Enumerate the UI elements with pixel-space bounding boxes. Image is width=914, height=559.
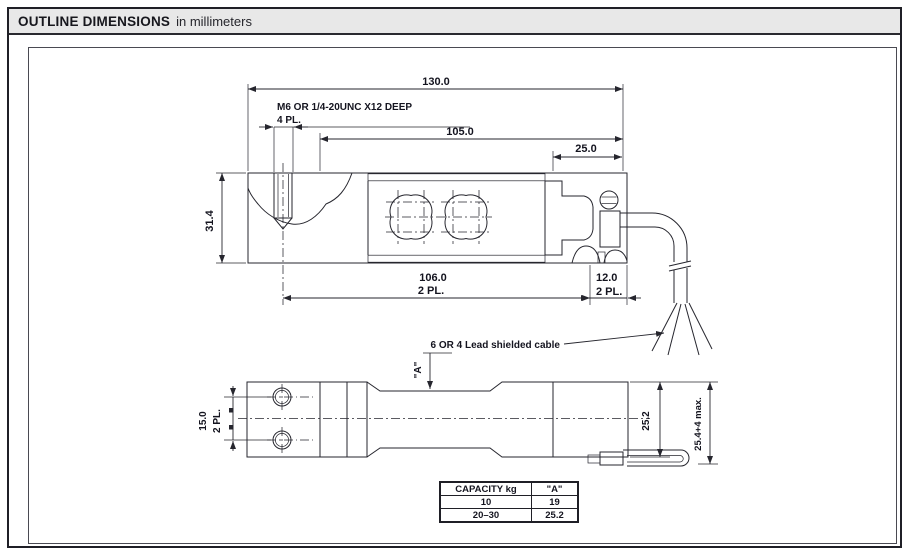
dim-cable-inset-label: 12.0 xyxy=(596,272,617,284)
top-view-dimensions: 130.0 M6 OR 1/4-20UNC X12 DEEP 4 PL. 105… xyxy=(204,76,664,351)
capacity-value: 10 xyxy=(440,496,532,509)
dim-hole-span-places-label: 2 PL. xyxy=(418,285,444,297)
crosshatch-plug xyxy=(545,181,593,255)
dim-cable-inset-places-label: 2 PL. xyxy=(596,286,622,298)
side-view xyxy=(238,382,689,466)
dim-hole-pitch-label: 15.0 xyxy=(198,411,209,431)
capacity-table: CAPACITY kg "A" 10 19 20–30 25.2 xyxy=(439,481,579,523)
knurl-strip-top xyxy=(368,174,545,181)
screw-head-icon xyxy=(600,191,618,209)
hatch-hump-left xyxy=(572,246,600,263)
datasheet-page: OUTLINE DIMENSIONS in millimeters xyxy=(0,0,914,559)
a-value: 25.2 xyxy=(532,509,579,523)
threaded-hole xyxy=(274,163,292,305)
dim-hole-pitch-places-label: 2 PL. xyxy=(212,409,223,433)
dim-mount-length-label: 105.0 xyxy=(446,126,474,138)
thread-note-line1: M6 OR 1/4-20UNC X12 DEEP xyxy=(277,102,412,113)
cable-note-label: 6 OR 4 Lead shielded cable xyxy=(431,340,561,351)
a-value: 19 xyxy=(532,496,579,509)
dim-overall-height-label: 25.4+4 max. xyxy=(693,397,704,451)
cable-gland xyxy=(600,191,620,247)
body-outline xyxy=(248,173,627,263)
cable xyxy=(620,213,712,355)
mounting-hole-bottom xyxy=(267,427,313,453)
dimension-lines-side xyxy=(233,353,710,464)
knurl-strip-bottom xyxy=(368,255,545,262)
table-row: 20–30 25.2 xyxy=(440,509,578,523)
extension-lines-side xyxy=(224,353,718,464)
cable-fitting-side xyxy=(588,450,689,466)
dim-hole-span-label: 106.0 xyxy=(419,272,447,284)
table-row: 10 19 xyxy=(440,496,578,509)
dim-a-ref-label: "A" xyxy=(413,361,424,378)
datum-square-bottom xyxy=(229,425,234,430)
hatch-hump-right xyxy=(604,250,627,263)
knurled-shank xyxy=(367,382,553,457)
dim-overall-length-label: 130.0 xyxy=(422,76,450,88)
thread-note-line2: 4 PL. xyxy=(277,115,301,126)
top-view xyxy=(248,163,712,355)
outline-drawing: 130.0 M6 OR 1/4-20UNC X12 DEEP 4 PL. 105… xyxy=(0,0,914,559)
mounting-hole-top xyxy=(267,384,313,410)
side-body-right xyxy=(553,382,628,457)
section-hatch-left xyxy=(248,173,352,224)
capacity-value: 20–30 xyxy=(440,509,532,523)
center-marks xyxy=(385,190,492,244)
side-body-left xyxy=(247,382,367,457)
datum-square-top xyxy=(229,408,234,413)
capacity-table-header-row: CAPACITY kg "A" xyxy=(440,482,578,496)
dim-end-width-label: 25.0 xyxy=(575,143,596,155)
binocular-cutout xyxy=(385,190,492,244)
dim-body-height-label: 31.4 xyxy=(204,209,216,231)
capacity-column-header: CAPACITY kg xyxy=(440,482,532,496)
dim-end-height-label: 25.2 xyxy=(641,411,652,431)
a-column-header: "A" xyxy=(532,482,579,496)
